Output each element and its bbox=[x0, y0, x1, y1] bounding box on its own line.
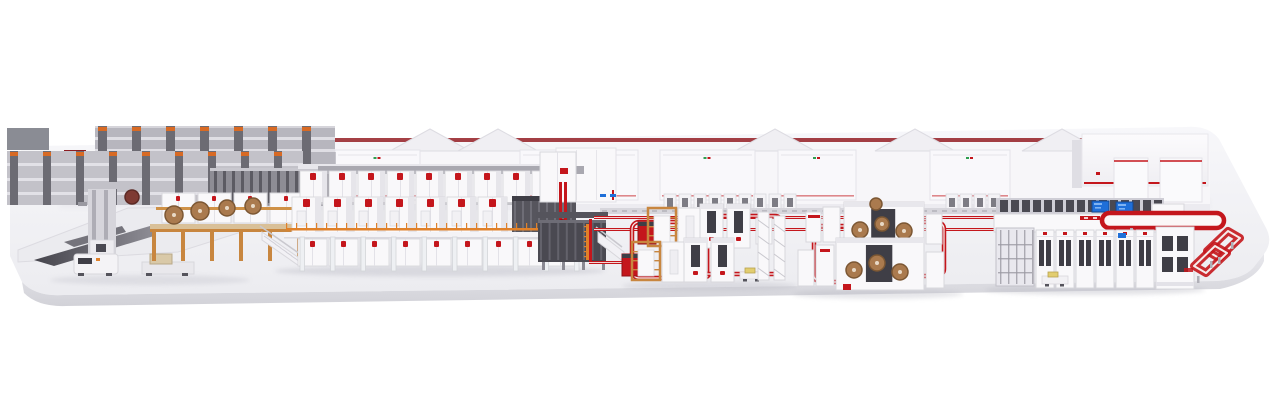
support-leg bbox=[422, 237, 427, 271]
support-leg bbox=[514, 237, 519, 271]
cart-load bbox=[1048, 272, 1058, 277]
rack-orange-cap bbox=[302, 127, 311, 131]
red-motor bbox=[339, 173, 345, 180]
dark-panel-row bbox=[538, 220, 606, 262]
rack-orange-cap bbox=[98, 127, 107, 131]
rack-column bbox=[142, 151, 150, 205]
loop-post bbox=[1218, 257, 1221, 264]
machine-window bbox=[1022, 200, 1030, 212]
red-motor bbox=[484, 173, 490, 180]
red-motor bbox=[455, 173, 461, 180]
mezzanine-beam bbox=[150, 229, 302, 232]
rack-end-block bbox=[7, 128, 49, 150]
rack-orange-cap bbox=[268, 127, 277, 131]
finishing-cabinet bbox=[1096, 230, 1114, 288]
rack-orange-cap bbox=[208, 152, 216, 156]
red-motor bbox=[397, 173, 403, 180]
machine-window bbox=[1066, 200, 1074, 212]
support-leg bbox=[392, 237, 397, 271]
machine-window bbox=[1162, 257, 1173, 272]
support-leg bbox=[453, 237, 458, 271]
end-cabinet bbox=[1156, 227, 1194, 289]
support-leg bbox=[361, 237, 366, 271]
plant-scene bbox=[0, 0, 1280, 405]
rack-orange-cap bbox=[234, 127, 243, 131]
red-motor bbox=[310, 173, 316, 180]
loop-post bbox=[1231, 242, 1234, 249]
red-motor bbox=[458, 199, 465, 207]
rack-orange-cap bbox=[241, 152, 249, 156]
logo-mark bbox=[374, 157, 377, 159]
red-motor bbox=[403, 241, 408, 247]
finishing-cabinet bbox=[1136, 230, 1154, 288]
red-motor bbox=[334, 199, 341, 207]
red-motor bbox=[212, 196, 216, 201]
finishing-cabinet bbox=[1116, 230, 1134, 288]
rack-orange-cap bbox=[76, 152, 84, 156]
rack-orange-cap bbox=[175, 152, 183, 156]
red-motor bbox=[372, 241, 377, 247]
finishing-cabinet bbox=[1076, 230, 1094, 288]
rack-orange-cap bbox=[43, 152, 51, 156]
die-cut-roll bbox=[870, 198, 882, 210]
support-leg bbox=[331, 237, 336, 271]
cart-load bbox=[745, 268, 755, 273]
mezzanine-post bbox=[181, 229, 185, 261]
red-motor bbox=[427, 199, 434, 207]
mezzanine-post bbox=[239, 229, 243, 261]
machine-window bbox=[1143, 200, 1151, 212]
loop-post bbox=[1197, 276, 1200, 283]
rack-column bbox=[302, 126, 311, 170]
rack-orange-cap bbox=[142, 152, 150, 156]
loop-post bbox=[1210, 261, 1213, 268]
red-motor bbox=[396, 199, 403, 207]
rack-orange-cap bbox=[109, 152, 117, 156]
red-motor bbox=[434, 241, 439, 247]
machine-box bbox=[798, 250, 814, 286]
red-motor bbox=[341, 241, 346, 247]
rack-orange-cap bbox=[166, 127, 175, 131]
machine-window bbox=[1077, 200, 1085, 212]
support-leg bbox=[483, 237, 488, 271]
rack-column bbox=[43, 151, 51, 205]
support-leg bbox=[300, 237, 305, 271]
red-motor bbox=[365, 199, 372, 207]
rack-orange-cap bbox=[132, 127, 141, 131]
logo-mark bbox=[704, 157, 707, 159]
red-motor bbox=[310, 241, 315, 247]
mezzanine-post bbox=[210, 229, 214, 261]
machine-window bbox=[1044, 200, 1052, 212]
machine-hood bbox=[1114, 158, 1148, 202]
red-motor bbox=[489, 199, 496, 207]
machine-box bbox=[823, 207, 840, 242]
red-motor bbox=[368, 173, 374, 180]
rack-column bbox=[10, 151, 18, 205]
machine-window bbox=[1162, 236, 1173, 251]
red-motor bbox=[496, 241, 501, 247]
rack-column bbox=[76, 151, 84, 205]
red-motor bbox=[284, 196, 288, 201]
logo-mark bbox=[966, 157, 969, 159]
rack-orange-cap bbox=[200, 127, 209, 131]
rack-orange-cap bbox=[10, 152, 18, 156]
machine-window bbox=[1033, 200, 1041, 212]
logo-mark bbox=[1096, 172, 1100, 175]
machine-window bbox=[1011, 200, 1019, 212]
red-motor bbox=[176, 196, 180, 201]
display-screen bbox=[1092, 201, 1109, 212]
red-motor bbox=[303, 199, 310, 207]
wall-panel-blue bbox=[600, 194, 606, 197]
red-unit bbox=[843, 284, 851, 290]
red-pill-conveyor bbox=[1102, 213, 1224, 228]
blue-panel bbox=[1118, 233, 1126, 238]
logo-mark bbox=[813, 157, 816, 159]
finishing-line bbox=[985, 198, 1224, 295]
paper-roll-dark bbox=[125, 190, 139, 204]
glass-unit bbox=[996, 228, 1034, 286]
mezzanine-post bbox=[152, 229, 156, 261]
plant-render bbox=[0, 0, 1280, 405]
machine-window bbox=[1055, 200, 1063, 212]
red-motor bbox=[426, 173, 432, 180]
machine-window bbox=[1177, 236, 1188, 251]
rack-orange-cap bbox=[274, 152, 282, 156]
machine-window bbox=[1000, 200, 1008, 212]
red-motor bbox=[527, 241, 532, 247]
red-motor bbox=[465, 241, 470, 247]
machine-hood bbox=[1160, 158, 1202, 202]
red-motor bbox=[513, 173, 519, 180]
